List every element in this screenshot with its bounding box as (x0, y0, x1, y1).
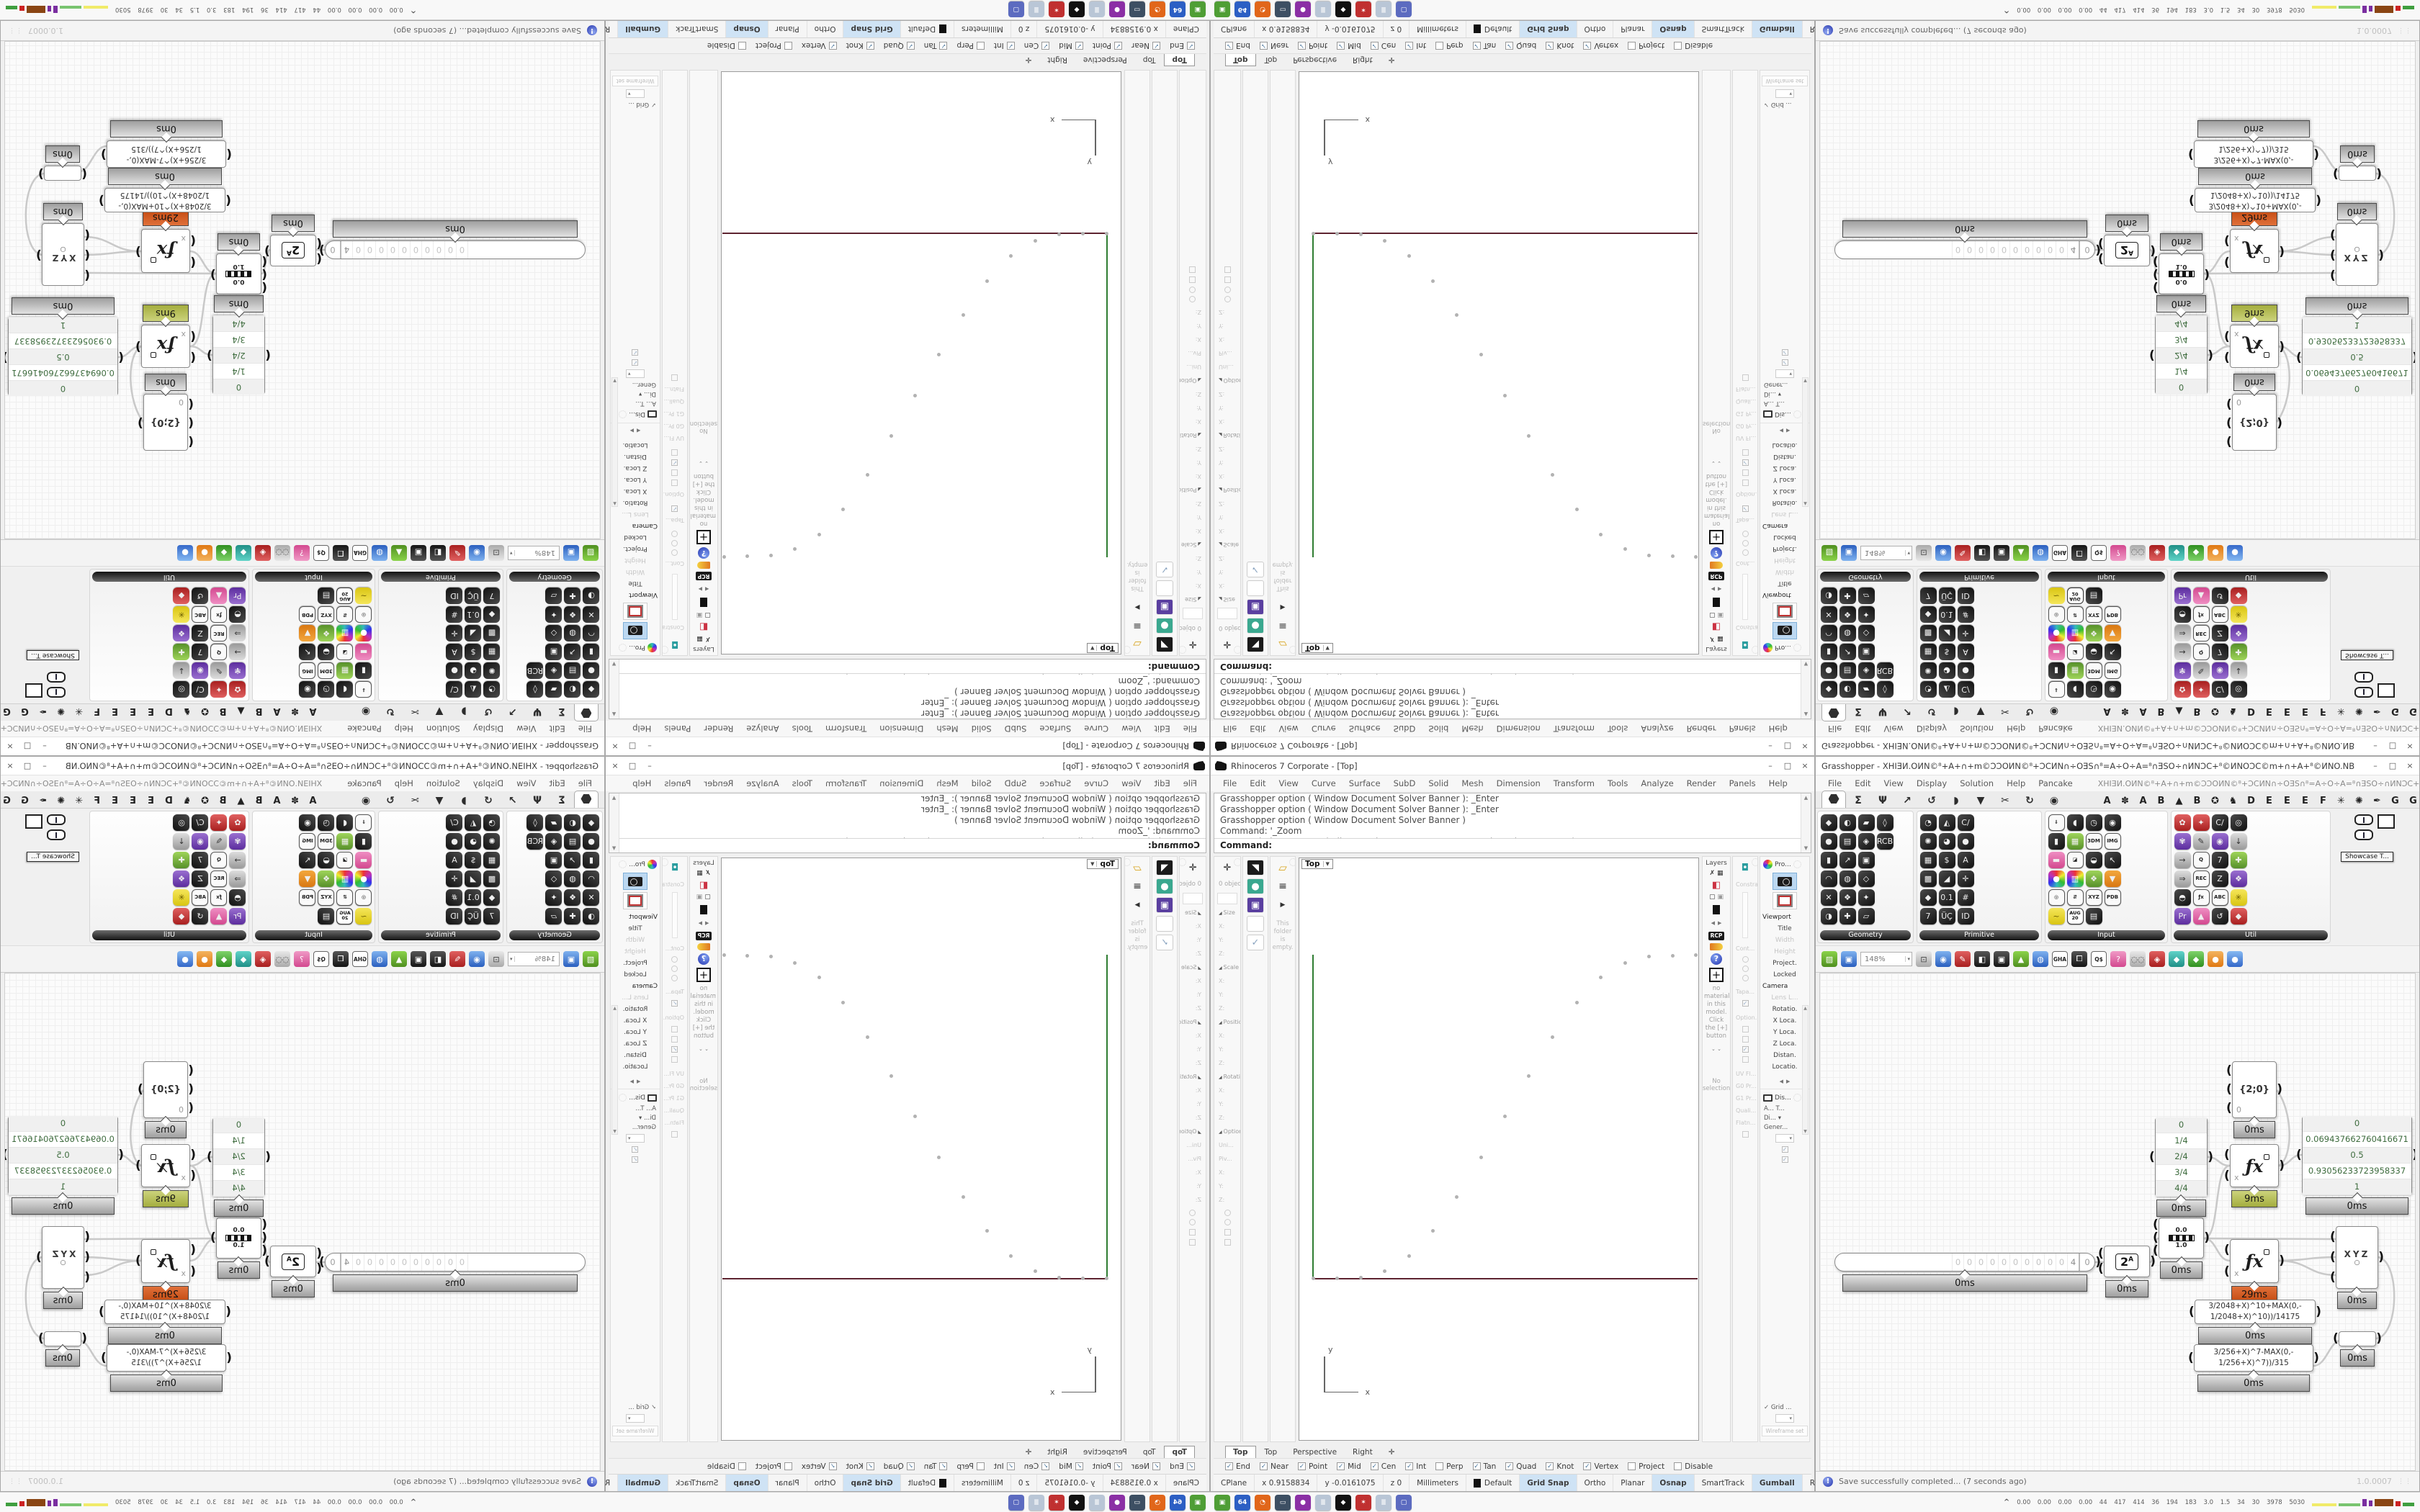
digit-scroller[interactable]: 000000000040 (1835, 1254, 2094, 1271)
gh-plugin-tab[interactable]: B (250, 704, 268, 716)
gh-component-icon[interactable]: ▲ (2193, 908, 2210, 924)
close-button[interactable]: × (1800, 761, 1810, 770)
gh-component-icon[interactable]: ✿ (2174, 814, 2191, 831)
property-row[interactable]: Project. (1760, 543, 1809, 554)
command-history[interactable]: Grasshopper option ( Window Document Sol… (609, 793, 1206, 853)
point-object[interactable] (1694, 555, 1698, 559)
close-button[interactable]: × (610, 742, 620, 751)
gh-component-icon[interactable]: ◓ (2174, 889, 2191, 906)
gh-node-body[interactable]: ((( ) ƒx XYZ (2232, 394, 2277, 451)
gh-component-icon[interactable]: ❖ (1839, 889, 1856, 906)
osnap-toggle[interactable]: ✓ Near (1131, 1462, 1160, 1471)
gh-component-icon[interactable]: ✦ (2193, 682, 2210, 698)
hamburger-icon[interactable]: ≡ (1274, 878, 1291, 894)
osnap-toggle[interactable]: ✓ Knot (846, 1462, 874, 1471)
osnap-toggle[interactable]: ✓ Quad (1505, 1462, 1536, 1471)
gh-component-icon[interactable]: ↗ (1839, 852, 1856, 868)
gha-assembly-icon[interactable]: GHA (2052, 545, 2068, 561)
property-row[interactable]: Height (1760, 554, 1809, 566)
gh-component-icon[interactable]: C/ (2212, 814, 2228, 831)
output-port-icon[interactable]: ) (99, 1306, 104, 1318)
checkbox-icon[interactable]: ✓ (1041, 1462, 1049, 1470)
render-frame-button[interactable] (1773, 892, 1797, 909)
gh-component-icon[interactable]: ▮ (583, 644, 600, 661)
checkbox-icon[interactable]: ✓ (1041, 42, 1049, 50)
gh-component-icon[interactable]: ID (447, 908, 463, 924)
chevron-down-icon[interactable]: ▾ (508, 956, 515, 962)
gh-component-icon[interactable]: ▦ (2067, 663, 2084, 680)
osnap-toggle[interactable]: ✓ Tan (924, 1462, 948, 1471)
gh-plugin-tab[interactable]: ✳ (2332, 704, 2350, 716)
named-view-icon[interactable]: ◘ (666, 636, 684, 652)
gh-component-icon[interactable]: # (1958, 889, 1974, 906)
gh-component-icon[interactable]: ✳ (2231, 607, 2247, 624)
gh-component-icon[interactable]: ▲ (211, 588, 228, 605)
output-port-icon[interactable]: ) (38, 167, 44, 179)
sketch-pen-icon[interactable]: ✎ (1955, 951, 1971, 967)
constraints-panel[interactable]: ◘ Constra... Cont...Tapa...✓Option...✓UV… (662, 70, 688, 656)
properties-panel[interactable]: Pro... ViewportTitleWidthHeightProject.L… (1760, 856, 1810, 1442)
paint-brush-icon[interactable] (1710, 562, 1723, 569)
gh-component-icon[interactable]: ⇓ (2048, 682, 2065, 698)
gh-component-icon[interactable]: Pr (2174, 588, 2191, 605)
property-row[interactable]: Distan. (611, 1050, 660, 1061)
tray-expand-icon[interactable]: ^ (411, 6, 416, 14)
gh-menu-item[interactable]: Edit (1848, 778, 1877, 788)
osnap-toggle[interactable]: Perp (1435, 42, 1463, 50)
gh-component-icon[interactable]: ◠ (1821, 870, 1837, 887)
gh-component-icon[interactable]: ▥ (2067, 626, 2084, 642)
rhino-titlebar[interactable]: Rhinoceros 7 Corporate - [Top] – □ × (606, 757, 1209, 775)
output-port-icon[interactable]: ) (2279, 245, 2285, 257)
status-segment[interactable]: Ortho (807, 1475, 843, 1491)
checkbox-icon[interactable]: ✓ (1371, 1462, 1379, 1470)
output-port-icon[interactable]: ) (101, 148, 107, 161)
osnap-toggle[interactable]: ✓ Quad (884, 42, 915, 50)
rhino-menu-item[interactable]: Dimension (1490, 724, 1547, 734)
gh-canvas[interactable]: ) ƒx XYZ (1819, 973, 2416, 1471)
gh-plugin-tab[interactable]: A (304, 704, 322, 716)
command-history[interactable]: Grasshopper option ( Window Document Sol… (1214, 793, 1811, 853)
layers-materials-panel[interactable]: Layers ✗▦ ◧ ▢▣ ◀▶ RCP ? + no material in… (1702, 70, 1731, 656)
digit-cell[interactable]: 4 (341, 1254, 353, 1271)
checkbox-icon[interactable]: ✓ (1546, 1462, 1554, 1470)
property-row[interactable]: Camera (611, 520, 660, 531)
gh-plugin-tab[interactable]: A (268, 796, 286, 808)
paint-brush-icon[interactable] (697, 562, 710, 569)
gh-component-icon[interactable]: PDB (2105, 607, 2121, 624)
app-red-icon[interactable]: ✶ (1355, 1495, 1371, 1511)
properties-scrollbar[interactable]: ▲▼ (611, 377, 618, 507)
gh-component-icon[interactable]: ⇵ (2067, 607, 2084, 624)
digit-cell[interactable]: 0 (326, 241, 341, 258)
display-dropdown[interactable]: ▾ (1775, 1134, 1794, 1143)
gem-red-icon[interactable]: ◈ (2149, 951, 2165, 967)
maximize-button[interactable]: □ (1783, 761, 1793, 770)
help-question-icon[interactable]: ? (1711, 953, 1722, 965)
rhino-menu-item[interactable]: Analyze (740, 724, 785, 734)
gh-plugin-tab[interactable]: ✺ (52, 704, 70, 716)
dock-icon[interactable]: ▣ (1156, 897, 1173, 913)
input-port-icon[interactable]: ( (226, 148, 232, 161)
gh-component-icon[interactable]: ✳ (2231, 889, 2247, 906)
point-object[interactable] (1383, 1269, 1386, 1273)
gh-plugin-tab[interactable]: ♞ (2224, 796, 2242, 808)
gh-component-icon[interactable]: ◪ (2067, 644, 2084, 661)
input-port-icon[interactable]: ( (261, 1245, 267, 1257)
chevron-down-icon[interactable]: ▼ (1090, 645, 1097, 651)
rhino-menu-item[interactable]: Transform (819, 778, 873, 788)
app-monitor-icon[interactable]: ▭ (1275, 2, 1291, 18)
rhino-menu-item[interactable]: Tools (1601, 724, 1634, 734)
gh-component-icon[interactable]: ▬ (2048, 644, 2065, 661)
rhino-menu-item[interactable]: Panels (658, 778, 697, 788)
close-button[interactable]: × (5, 761, 15, 770)
gh-component-icon[interactable]: ▼ (2105, 626, 2121, 642)
rhino-menu-item[interactable]: Edit (1147, 778, 1176, 788)
digit-cell[interactable]: 0 (1963, 241, 1975, 258)
osnap-toggle[interactable]: ✓ Knot (846, 42, 874, 50)
grid-dropdown[interactable]: ▾ (626, 89, 645, 98)
command-scrollbar[interactable]: ▲▼ (609, 793, 619, 852)
osnap-toggle[interactable]: ✓ Knot (1546, 42, 1574, 50)
digit-cell[interactable]: 0 (1998, 241, 2009, 258)
rhino-menu-item[interactable]: Panels (1723, 778, 1762, 788)
gh-menu-item[interactable]: File (1821, 778, 1848, 788)
gh-component-icon[interactable]: ◈ (546, 663, 563, 680)
showcase-board-icon[interactable] (25, 814, 42, 829)
property-row[interactable]: Locked (611, 531, 660, 543)
open-file-icon[interactable]: ▨ (583, 951, 599, 967)
output-port-icon[interactable]: ) (2316, 194, 2321, 207)
point-object[interactable] (1503, 1115, 1507, 1118)
property-row[interactable]: Title (1760, 923, 1809, 935)
gh-component-icon[interactable]: ▱ (1858, 588, 1875, 605)
gh-plugin-tab[interactable]: ♞ (2224, 704, 2242, 716)
gh-menu-item[interactable]: Display (467, 724, 510, 734)
digit-cell[interactable]: 0 (2056, 241, 2067, 258)
maximize-button[interactable]: □ (2388, 742, 2398, 751)
gem-green-icon[interactable]: ◆ (2188, 545, 2204, 561)
output-port-icon[interactable]: ) (135, 341, 141, 353)
gha-assembly-icon[interactable]: GHA (352, 545, 368, 561)
zoom-extents-icon[interactable]: ⊡ (1916, 951, 1932, 967)
checkbox-icon[interactable] (784, 42, 792, 50)
preview-eye-icon[interactable]: ◉ (469, 951, 485, 967)
checkbox-icon[interactable]: ✓ (1583, 42, 1591, 50)
gear-icon[interactable] (619, 860, 627, 868)
gh-component-icon[interactable]: Q (211, 644, 228, 661)
gh-component-icon[interactable]: ✚ (174, 852, 190, 868)
gh-plugin-tab[interactable]: ✺ (2350, 704, 2368, 716)
input-port-icon[interactable]: ( (2153, 281, 2159, 293)
gh-node[interactable]: ((( ) ƒx 0.01.0 XYZ (216, 1218, 261, 1279)
gh-plugin-tab[interactable]: E (2296, 704, 2314, 716)
panel-nav-arrows[interactable]: ◀▶ (690, 920, 717, 926)
property-row[interactable]: Locked (1760, 531, 1809, 543)
gh-plugin-tab[interactable]: ✒ (2368, 796, 2386, 808)
gh-component-icon[interactable]: ⇒ (230, 626, 246, 642)
gh-component-icon[interactable]: ◎ (174, 814, 190, 831)
gh-menu-item[interactable]: Help (388, 778, 420, 788)
gh-component-icon[interactable]: ◉ (192, 833, 209, 850)
input-port-icon[interactable]: ( (2330, 269, 2336, 281)
slider-track[interactable] (672, 892, 678, 938)
gh-component-icon[interactable]: ▲ (211, 908, 228, 924)
output-port-icon[interactable]: ) (2204, 1232, 2210, 1244)
zoom-extents-icon[interactable]: ⊡ (1916, 545, 1932, 561)
rhino-menu-item[interactable]: Solid (1422, 724, 1455, 734)
rhino-menu-item[interactable]: Dimension (873, 724, 930, 734)
osnap-toggle[interactable]: Project (756, 42, 792, 50)
layers-toolbar-icons[interactable]: ✗▦ (1703, 635, 1730, 642)
gh-component-icon[interactable]: ~ (356, 588, 372, 605)
properties-tab[interactable]: Pro... (611, 642, 660, 655)
dock-icon[interactable]: ✓ (1247, 562, 1264, 577)
wireframe-set-label[interactable]: Wireframe set (1762, 76, 1808, 86)
named-view-icon[interactable]: ◘ (666, 860, 684, 876)
input-port-icon[interactable]: ( (2224, 256, 2230, 268)
gh-component-icon[interactable]: ✚ (2231, 644, 2247, 661)
rhino-menu-item[interactable]: Render (1680, 778, 1723, 788)
gem-red-icon[interactable]: ◈ (255, 545, 271, 561)
gh-component-icon[interactable]: ◠ (583, 870, 600, 887)
display-checkbox[interactable]: ✓ (1782, 1156, 1788, 1163)
checkbox-icon[interactable]: ✓ (907, 1462, 915, 1470)
gh-group-label[interactable]: Primitive (381, 930, 501, 940)
gh-component-icon[interactable]: ● (1958, 663, 1974, 680)
gh-component-icon[interactable]: ❖ (2086, 870, 2102, 887)
gh-menu-item[interactable]: Edit (1848, 724, 1877, 734)
app-monitor-icon[interactable]: ▭ (1275, 1495, 1291, 1511)
materials-chevrons[interactable]: ⌄ ⌄ (690, 460, 717, 466)
constraints-panel[interactable]: ◘ Constra... Cont...Tapa...✓Option...✓UV… (662, 856, 688, 1442)
gh-category-tab[interactable]: ◉ (2042, 795, 2066, 808)
viewport-tab[interactable]: Perspective (1076, 54, 1134, 66)
gh-plugin-tab[interactable]: G (2386, 704, 2404, 716)
gh-component-icon[interactable]: ✛ (1958, 870, 1974, 887)
digit-scroller[interactable]: 000000000040 (326, 1254, 585, 1271)
input-port-icon[interactable]: ( (2333, 167, 2339, 179)
rhino-menu-item[interactable]: Help (1762, 724, 1794, 734)
gh-category-tab[interactable]: ↺ (1919, 795, 1944, 808)
display-checkbox[interactable]: ✓ (632, 1146, 639, 1153)
app-window-icon[interactable]: ▢ (1008, 2, 1024, 18)
gh-component-icon[interactable]: RCB (1877, 833, 1894, 850)
gh-component-icon[interactable]: ◍ (565, 870, 581, 887)
gh-node-body[interactable]: (( ) ƒx x XYZ (2230, 1144, 2279, 1187)
gh-node[interactable]: (( ) ƒx x XYZ (141, 305, 190, 368)
status-segment[interactable]: Millimeters (1410, 1475, 1466, 1491)
gh-component-icon[interactable]: IMG (2105, 833, 2121, 850)
camera-icon[interactable]: ▣ (411, 545, 426, 561)
gh-category-tab[interactable]: Σ (550, 704, 574, 717)
point-object[interactable] (1647, 955, 1651, 958)
expand-arrow-icon[interactable]: ▶ (1274, 599, 1291, 615)
status-segment[interactable]: Millimeters (954, 21, 1010, 37)
gh-component-icon[interactable]: ✛ (447, 626, 463, 642)
gh-component-icon[interactable]: ◢ (1939, 870, 1955, 887)
gh-component-icon[interactable]: ◢ (1939, 626, 1955, 642)
gh-plugin-tab[interactable]: D (160, 704, 178, 716)
gh-component-icon[interactable]: ❖ (565, 889, 581, 906)
panel-nav-arrows[interactable]: ◀▶ (611, 1079, 660, 1084)
libraries-panel[interactable]: ▱ ≡ ▶ This folder is empty. (1270, 70, 1296, 656)
help-question-icon[interactable]: ? (698, 953, 709, 965)
gh-component-icon[interactable]: ◑ (1821, 908, 1837, 924)
gh-component-icon[interactable]: ✾ (230, 663, 246, 680)
input-port-icon[interactable]: ( (2224, 1266, 2230, 1278)
gh-node-body[interactable]: ((( ) ƒx XYZ (42, 223, 84, 286)
gh-node-body[interactable]: (( ) ƒx x XYZ (2230, 1239, 2279, 1283)
property-row[interactable]: Title (1760, 577, 1809, 589)
gh-component-icon[interactable]: ❖ (2231, 870, 2247, 887)
gh-component-icon[interactable]: A (1958, 644, 1974, 661)
bake-icon[interactable]: ◌◌ (274, 951, 290, 967)
maximize-button[interactable]: □ (1783, 742, 1793, 751)
gh-node[interactable]: ) ƒx XYZ (1834, 1253, 2095, 1292)
gh-plugin-tab[interactable]: D (2242, 704, 2260, 716)
status-segment[interactable]: z 0 (1010, 21, 1037, 37)
status-segment[interactable]: y -0.0161075 (1317, 1475, 1383, 1491)
osnap-toggle[interactable]: ✓ Knot (1546, 1462, 1574, 1471)
point-object[interactable] (769, 554, 773, 557)
gh-node-body[interactable]: ( ) ƒx XYZ (212, 1117, 265, 1197)
sphere-orange-icon[interactable]: ● (2208, 951, 2223, 967)
rhino-menu-item[interactable]: Curve (1305, 778, 1343, 788)
layer-swatch[interactable] (1713, 905, 1720, 914)
status-segment[interactable]: Default (900, 1475, 954, 1491)
gh-node[interactable]: ( ) ƒx XYZ (8, 297, 118, 396)
gh-menu-item[interactable]: Solution (1953, 778, 2000, 788)
gh-node[interactable]: ( ) ƒx XYZ (212, 295, 265, 395)
input-port-icon[interactable]: ( (188, 1065, 194, 1077)
gh-component-icon[interactable]: ✚ (2231, 852, 2247, 868)
checkbox-icon[interactable]: ✓ (1405, 1462, 1413, 1470)
gh-component-icon[interactable]: AUG 20 (337, 908, 354, 924)
gh-component-icon[interactable]: ● (447, 833, 463, 850)
status-segment[interactable]: z 0 (1384, 1475, 1410, 1491)
gear-icon[interactable] (619, 410, 627, 418)
libraries-panel[interactable]: ▱ ≡ ▶ This folder is empty. (1124, 70, 1150, 656)
gh-plugin-tab[interactable]: ✽ (286, 796, 304, 808)
gh-component-icon[interactable]: ƒx (2193, 607, 2210, 624)
gh-component-icon[interactable]: ◖ (2067, 814, 2084, 831)
checkbox-icon[interactable]: ✓ (907, 42, 915, 50)
osnap-toggle[interactable]: ✓ Mid (1059, 42, 1083, 50)
rhino-menu-item[interactable]: Analyze (740, 778, 785, 788)
rhino-menu-item[interactable]: Surface (1033, 778, 1077, 788)
checkbox-icon[interactable]: ✓ (1337, 42, 1345, 50)
display-checkbox[interactable]: ✓ (1782, 1146, 1788, 1153)
gh-component-icon[interactable]: ▱ (1858, 908, 1875, 924)
gh-component-icon[interactable]: PDB (2105, 889, 2121, 906)
dock-icon[interactable]: ▣ (1247, 599, 1264, 615)
gh-node-body[interactable]: ((( ) ƒx 0.01.0 XYZ (2159, 1218, 2204, 1259)
point-object[interactable] (1335, 1277, 1339, 1280)
minimize-button[interactable]: – (645, 761, 655, 770)
showcase-board-icon[interactable] (2378, 683, 2395, 698)
gh-component-icon[interactable]: ↺ (192, 908, 209, 924)
gh-plugin-tab[interactable]: A (268, 704, 286, 716)
gh-category-tab[interactable]: ✂ (1993, 795, 2017, 808)
gh-plugin-tab[interactable]: G (16, 796, 34, 808)
gh-component-icon[interactable]: Z (2212, 626, 2228, 642)
status-segment[interactable]: CPlane (1214, 21, 1255, 37)
properties-scrollbar[interactable]: ▲▼ (1802, 377, 1809, 507)
gh-component-icon[interactable]: ◓ (230, 889, 246, 906)
save-file-icon[interactable]: ▣ (1841, 951, 1857, 967)
screenshot-icon[interactable]: ⧠ (333, 951, 349, 967)
input-port-icon[interactable]: ( (2226, 1084, 2232, 1096)
viewport-properties-button[interactable] (1773, 622, 1797, 639)
gh-plugin-tab[interactable]: E (2296, 796, 2314, 808)
gh-node-body[interactable]: ( ) ƒx XYZ (212, 315, 265, 395)
gh-group-label[interactable]: Input (255, 930, 372, 940)
panel-nav-arrows[interactable]: ◀▶ (1703, 920, 1730, 926)
save-file-icon[interactable]: ▣ (563, 951, 579, 967)
maximize-button[interactable]: □ (22, 742, 32, 751)
output-port-icon[interactable]: ) (207, 349, 212, 361)
add-material-button[interactable]: + (1709, 530, 1724, 544)
gh-node-body[interactable]: ( ) ƒx XYZ (44, 166, 81, 181)
output-port-icon[interactable]: ) (2412, 351, 2416, 363)
cluster-icon[interactable]: ◍ (372, 545, 387, 561)
gh-component-icon[interactable]: ↓ (174, 663, 190, 680)
gh-component-icon[interactable]: 7 (484, 588, 501, 605)
digit-cell[interactable]: 0 (353, 1254, 364, 1271)
output-port-icon[interactable]: ) (99, 194, 104, 207)
gh-component-icon[interactable]: ⇒ (2174, 626, 2191, 642)
point-object[interactable] (1034, 1269, 1037, 1273)
gh-component-icon[interactable]: ◖ (337, 814, 354, 831)
hide-icon[interactable]: ◧ (430, 545, 446, 561)
app-monitor-icon[interactable]: ▭ (1129, 2, 1145, 18)
gh-component-icon[interactable]: ◉ (2212, 833, 2228, 850)
gh-node[interactable]: (( ) ƒx x XYZ (2230, 1144, 2279, 1207)
dock-icon[interactable]: ◥ (1247, 860, 1264, 876)
showcase-board-icon[interactable] (25, 683, 42, 698)
gh-plugin-tab[interactable]: A (2134, 796, 2152, 808)
gh-component-icon[interactable]: 3DM (2086, 833, 2102, 850)
gh-node-body[interactable]: ( ) ƒx XYZ (2195, 188, 2316, 212)
gh-component-icon[interactable]: ● (2048, 626, 2065, 642)
property-row[interactable]: Lens L... (611, 508, 660, 520)
boxedit-panel[interactable]: ✛ 0 objectsSizeX:Y:Z:ScaleX:Y:Z:Position… (1214, 856, 1241, 1442)
status-segment[interactable]: Osnap (725, 1475, 767, 1491)
input-port-icon[interactable]: ( (316, 1263, 322, 1275)
gh-category-tab[interactable] (574, 791, 599, 808)
zoom-level-combo[interactable]: 148% ▾ (1860, 546, 1912, 560)
add-material-button[interactable]: + (696, 968, 711, 982)
gh-component-icon[interactable]: ● (1821, 663, 1837, 680)
grid-checkbox-label[interactable]: ✓ Grid ... (611, 1402, 660, 1411)
point-object[interactable] (1312, 232, 1315, 235)
gh-component-icon[interactable]: ƒx (211, 607, 228, 624)
gh-component-icon[interactable]: ▩ (1920, 870, 1937, 887)
gh-component-icon[interactable]: ◖ (2067, 682, 2084, 698)
osnap-toggle[interactable]: ✓ Point (1298, 1462, 1327, 1471)
osnap-toggle[interactable]: ✓ Quad (1505, 42, 1536, 50)
point-object[interactable] (985, 1229, 989, 1233)
gh-component-icon[interactable]: ✦ (211, 682, 228, 698)
rhino-menu-item[interactable]: Analyze (1634, 778, 1680, 788)
gh-category-tab[interactable]: ◗ (452, 704, 476, 717)
osnap-toggle[interactable]: Perp (956, 42, 984, 50)
gh-node-body[interactable]: (( ) ƒx 2A XYZ (270, 235, 316, 266)
gh-component-icon[interactable]: IMG (2105, 663, 2121, 680)
gh-component-icon[interactable]: REC (211, 870, 228, 887)
